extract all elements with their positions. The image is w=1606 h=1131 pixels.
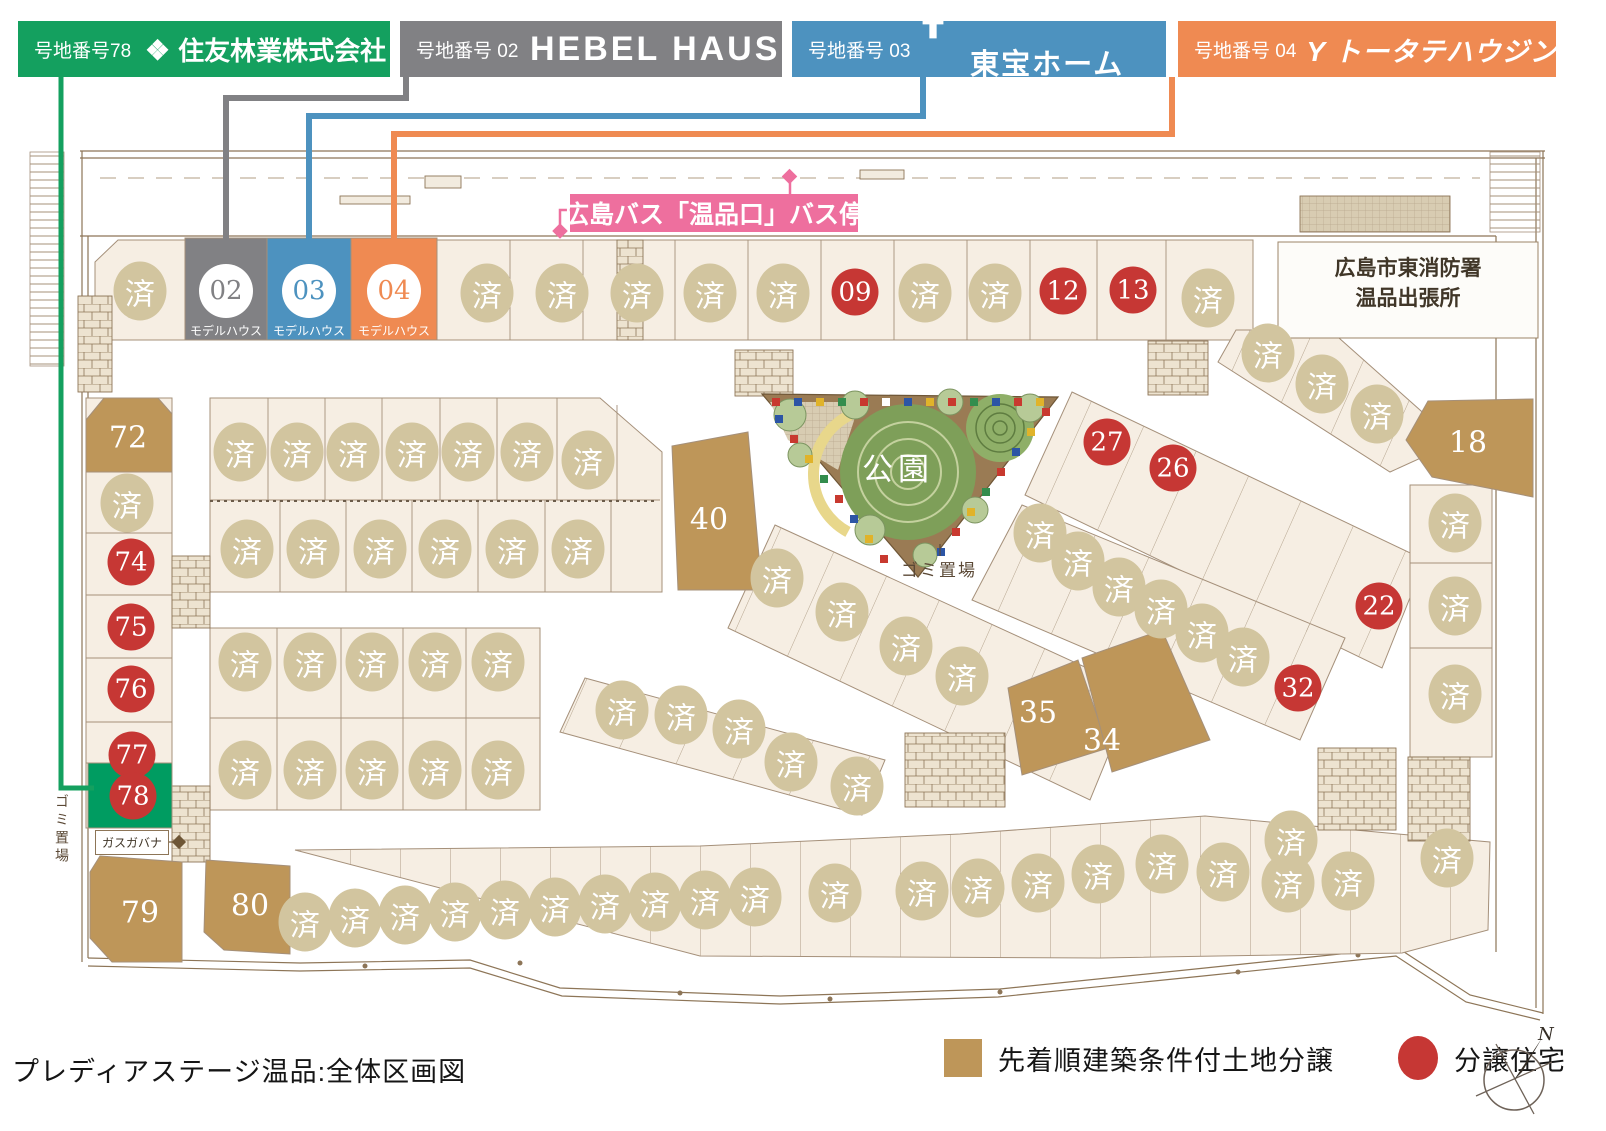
sidewalk-hatch-right — [1490, 152, 1540, 232]
banner-totate-company: Yトータテハウジング — [1306, 30, 1585, 69]
bottom-row-separators — [295, 816, 1490, 958]
model-lot-04-shape — [351, 238, 437, 340]
legend-unit-swatch — [1398, 1036, 1438, 1080]
model-lot-02-shape — [185, 238, 267, 340]
toho-home-icon — [920, 15, 1166, 41]
site-plan-map — [0, 0, 1606, 1131]
lot-40-shape — [672, 432, 762, 590]
lot-18-shape — [1406, 399, 1533, 497]
sumitomo-diamond-icon: ❖ — [145, 35, 170, 66]
lot-79-shape — [90, 856, 182, 962]
fire-station-line2: 温品出張所 — [1280, 284, 1536, 314]
lot-78-shape — [88, 763, 172, 828]
page-title: プレディアステージ温品:全体区画図 — [12, 1050, 466, 1089]
left-trash-label: ゴミ置場 — [52, 794, 72, 866]
model-lot-03-shape — [267, 238, 351, 340]
legend-land-swatch — [944, 1039, 982, 1077]
park-trash-label: ゴミ置場 — [901, 556, 977, 581]
banner-toho-home: 号地番号 03 東宝ホーム — [792, 21, 1166, 77]
park-label: 公園 — [862, 444, 934, 489]
banner-totate-housing: 号地番号 04 Yトータテハウジング — [1178, 21, 1556, 77]
gas-governor-label: ガスガバナ — [95, 830, 169, 855]
banner-hebel-lot-label: 号地番号 02 — [416, 36, 518, 63]
lot-80-shape — [204, 860, 290, 954]
street-dots — [363, 953, 1361, 1002]
banner-toho-lot-label: 号地番号 03 — [808, 36, 910, 63]
bus-stop-label: 広島バス「温品口」バス停 — [570, 194, 858, 232]
banner-hebel-haus: 号地番号 02 HEBEL HAUS — [400, 21, 782, 77]
street-furniture — [340, 170, 1450, 232]
totate-y-icon: Y — [1306, 36, 1326, 67]
banner-sumitomo-lot-label: 号地番号78 — [34, 36, 131, 63]
fire-station-line1: 広島市東消防署 — [1280, 254, 1536, 284]
banner-totate-lot-label: 号地番号 04 — [1194, 36, 1296, 63]
banner-sumitomo: 号地番号78 ❖住友林業株式会社 — [18, 21, 390, 77]
lot-72-shape — [86, 398, 172, 472]
site-plan-page: { "header": { "banners": [ {"id":"sumito… — [0, 0, 1606, 1131]
banner-hebel-company: HEBEL HAUS — [528, 30, 782, 69]
leader-line-hebel — [226, 77, 406, 242]
banner-sumitomo-company: ❖住友林業株式会社 — [141, 31, 390, 68]
legend-land-label: 先着順建築条件付土地分譲 — [998, 1039, 1334, 1078]
compass-rose: N — [1462, 1022, 1572, 1127]
compass-north-label: N — [1537, 1024, 1555, 1045]
fire-station-label: 広島市東消防署 温品出張所 — [1280, 254, 1536, 314]
banner-toho-company: 東宝ホーム — [920, 15, 1166, 83]
